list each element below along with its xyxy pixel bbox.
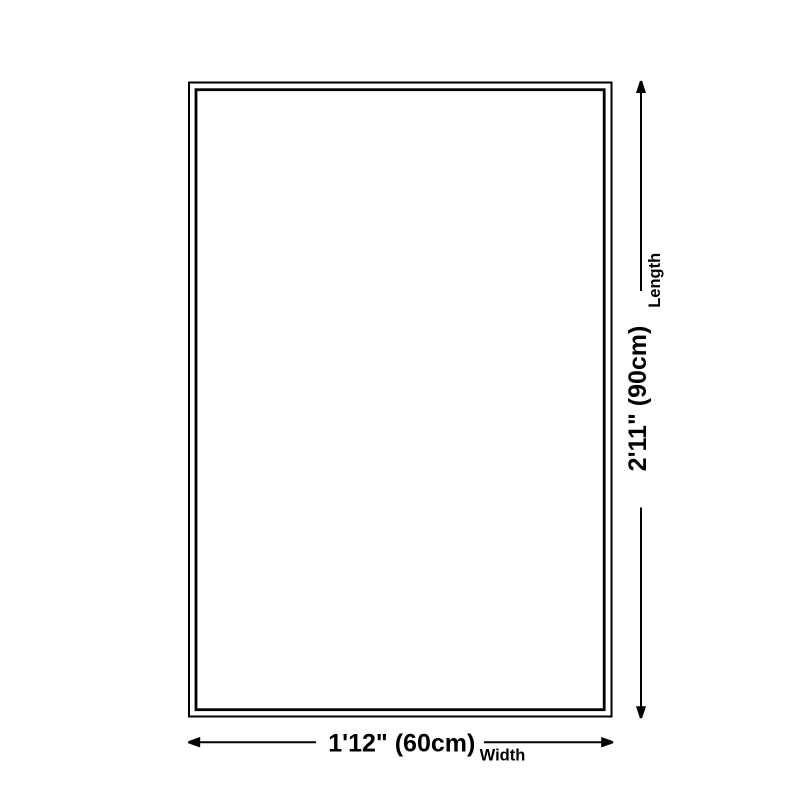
svg-text:Length: Length <box>646 253 664 308</box>
svg-text:2'11" (90cm): 2'11" (90cm) <box>624 326 652 472</box>
svg-text:1'12" (60cm): 1'12" (60cm) <box>328 729 475 757</box>
svg-text:Width: Width <box>480 746 526 764</box>
